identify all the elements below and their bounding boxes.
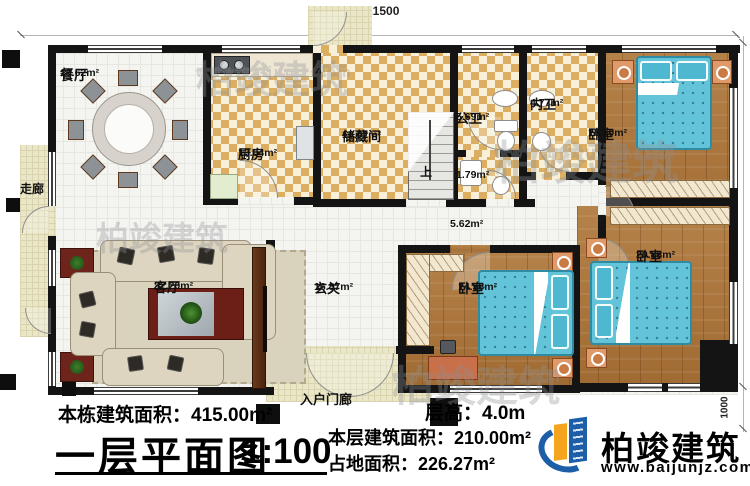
window xyxy=(729,88,738,188)
title-underline xyxy=(55,472,327,475)
total-building-area-text: 本栋建筑面积：415.00m² xyxy=(58,400,272,427)
dining-table-top xyxy=(104,104,154,154)
land-area-text: 占地面积：226.27m² xyxy=(328,450,495,476)
nightstand xyxy=(586,348,607,368)
nightstand xyxy=(612,60,634,84)
sofa-cushion xyxy=(167,355,185,373)
sofa-cushion xyxy=(127,355,144,372)
dining-chair xyxy=(172,120,188,140)
dining-chair xyxy=(68,120,84,140)
window xyxy=(532,45,586,53)
bathroom-sink xyxy=(492,90,518,107)
window xyxy=(729,282,738,344)
window xyxy=(88,45,162,53)
company-logo xyxy=(538,416,600,480)
bed-pillow xyxy=(595,266,613,300)
window xyxy=(622,45,716,53)
column xyxy=(6,198,20,212)
bed-pillow xyxy=(595,304,613,338)
logo-building-icon xyxy=(569,417,587,464)
nightstand xyxy=(552,252,573,272)
window xyxy=(48,250,56,286)
wardrobe xyxy=(406,254,430,346)
door-opening xyxy=(48,206,56,236)
window xyxy=(48,352,56,386)
door-opening xyxy=(313,45,343,53)
window xyxy=(94,387,198,395)
logo-building-icon xyxy=(554,423,567,461)
bed-sheet-fold xyxy=(534,272,548,354)
floor-plan-page: 21500 10000 1000 xyxy=(0,0,750,486)
nightstand xyxy=(586,238,607,258)
staircase-rail xyxy=(408,112,454,172)
column xyxy=(2,50,20,68)
dining-chair xyxy=(118,172,138,188)
window xyxy=(222,45,300,53)
bed-sheet-fold xyxy=(638,83,710,95)
sofa xyxy=(70,272,116,356)
bed-sheet-fold xyxy=(616,263,630,343)
desk-computer xyxy=(440,340,456,354)
door-opening xyxy=(486,199,514,207)
window xyxy=(462,45,514,53)
plant xyxy=(70,360,84,374)
floor-building-area-text: 本层建筑面积：210.00m² xyxy=(328,424,531,450)
window xyxy=(48,152,56,206)
column xyxy=(0,374,16,390)
door-opening xyxy=(238,197,294,205)
nightstand xyxy=(712,60,732,84)
kitchen-sink xyxy=(296,126,314,160)
floor-height-text: 层高：4.0m xyxy=(425,398,525,425)
plant xyxy=(70,256,84,270)
plan-scale: 1:100 xyxy=(242,432,332,472)
kitchen-fridge xyxy=(210,174,238,199)
window xyxy=(668,383,700,392)
wardrobe xyxy=(610,207,730,225)
plant xyxy=(180,302,202,324)
bed-pillow xyxy=(551,275,569,310)
dining-chair xyxy=(118,70,138,86)
bed-pillow xyxy=(640,61,672,81)
column xyxy=(62,382,76,396)
company-website: www.baijunjz.com xyxy=(601,459,750,476)
bed-pillow xyxy=(551,314,569,349)
window xyxy=(628,383,662,392)
dimension-line-top xyxy=(20,35,738,36)
sofa xyxy=(102,348,224,386)
door-opening xyxy=(406,199,446,207)
tv xyxy=(263,286,267,352)
bed-pillow xyxy=(676,61,708,81)
dimension-right-small-value: 1000 xyxy=(720,396,731,418)
sofa-cushion xyxy=(79,321,96,338)
wall xyxy=(700,340,730,390)
dimension-line-right xyxy=(743,36,744,432)
